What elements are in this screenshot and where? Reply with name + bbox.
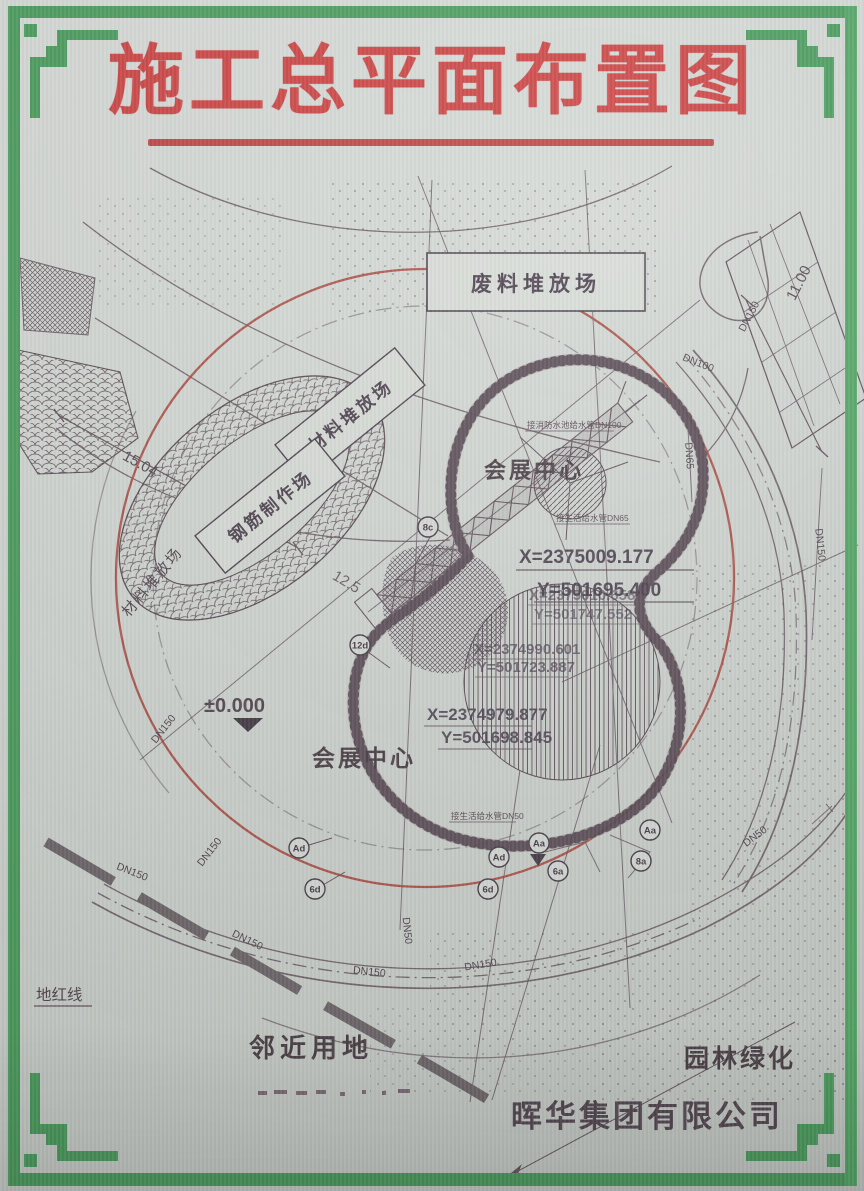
marker-6d-2-label: 6d [482, 885, 493, 896]
dn-label-2: DN65 [682, 442, 696, 470]
marker-8a-label: 8a [636, 857, 647, 868]
pipe-note-dn50: 接生活给水管DN50 [451, 811, 524, 821]
marker-ad-1: Ad [289, 838, 309, 858]
marker-6a-label: 6a [553, 867, 564, 878]
exhibition-center-bottom-label: 会展中心 [312, 745, 416, 771]
marker-6a: 6a [548, 861, 568, 881]
coord-2-x: X=2375010.658 [529, 587, 635, 604]
marker-ad-2-label: Ad [493, 853, 506, 864]
title-underline [148, 139, 714, 146]
dimension-15-04: 15.04 [120, 448, 161, 481]
dimension-12-5: 12.5 [329, 567, 363, 597]
coord-4-y: Y=501698.845 [441, 728, 552, 747]
coord-2-y: Y=501747.552 [534, 606, 632, 623]
marker-6d-1: 6d [305, 879, 325, 899]
coord-3-x: X=2374990.601 [474, 641, 580, 658]
coord-2: X=2375010.658 Y=501747.552 [527, 587, 642, 624]
dn-label-6: DN150 [115, 861, 150, 884]
pipe-note-fire: 接消防水池给水管DN100 [527, 420, 622, 430]
company-name: 晖华集团有限公司 [511, 1099, 783, 1134]
marker-ad-1-label: Ad [293, 844, 306, 855]
boundary-dashed-bar [46, 842, 492, 1102]
dn-label-0: DN150 [736, 299, 762, 334]
dn-label-10: DN150 [352, 964, 386, 979]
exhibition-center-top-label: 会展中心 [484, 458, 584, 483]
pipe-note-dn65: 接生活给水管DN65 [556, 513, 629, 523]
coord-3-y: Y=501723.887 [477, 659, 575, 676]
dn-label-3: DN150 [812, 528, 827, 562]
coord-4-x: X=2374979.877 [427, 705, 548, 724]
marker-6d-2: 6d [478, 879, 498, 899]
site-plan-poster: 废料堆放场 材料堆放场 钢筋制作场 8c 12d Ad 6d Ad 6d Aa … [0, 0, 864, 1191]
hatched-strip-topright [726, 212, 864, 457]
landscaping-label: 园林绿化 [684, 1044, 796, 1073]
coord-1-x: X=2375009.177 [519, 547, 654, 568]
elevation-triangle [233, 718, 263, 732]
marker-12d-label: 12d [352, 641, 369, 652]
coord-3: X=2374990.601 Y=501723.887 [472, 641, 580, 677]
adjacent-land-label: 邻近用地 [249, 1033, 373, 1063]
marker-8c: 8c [418, 517, 438, 537]
elevation-zero-label: ±0.000 [204, 695, 265, 717]
marker-aa-1: Aa [529, 833, 549, 853]
marker-8a: 8a [631, 851, 651, 871]
marker-ad-2: Ad [489, 847, 509, 867]
waste-yard-label: 废料堆放场 [471, 272, 601, 296]
plan-drawing: 废料堆放场 材料堆放场 钢筋制作场 8c 12d Ad 6d Ad 6d Aa … [0, 0, 864, 1191]
marker-aa-2-label: Aa [644, 826, 657, 837]
marker-aa-1-label: Aa [533, 839, 546, 850]
marker-8c-label: 8c [423, 523, 434, 534]
marker-6d-1-label: 6d [309, 885, 320, 896]
dn-label-9: DN50 [400, 917, 415, 945]
page-title: 施工总平面布置图 [80, 42, 784, 122]
dn-label-7: DN150 [195, 835, 225, 868]
marker-aa-2: Aa [640, 820, 660, 840]
marker-12d: 12d [350, 635, 370, 655]
land-red-line-label: 地红线 [36, 986, 83, 1004]
waste-yard-box: 废料堆放场 [427, 253, 645, 311]
